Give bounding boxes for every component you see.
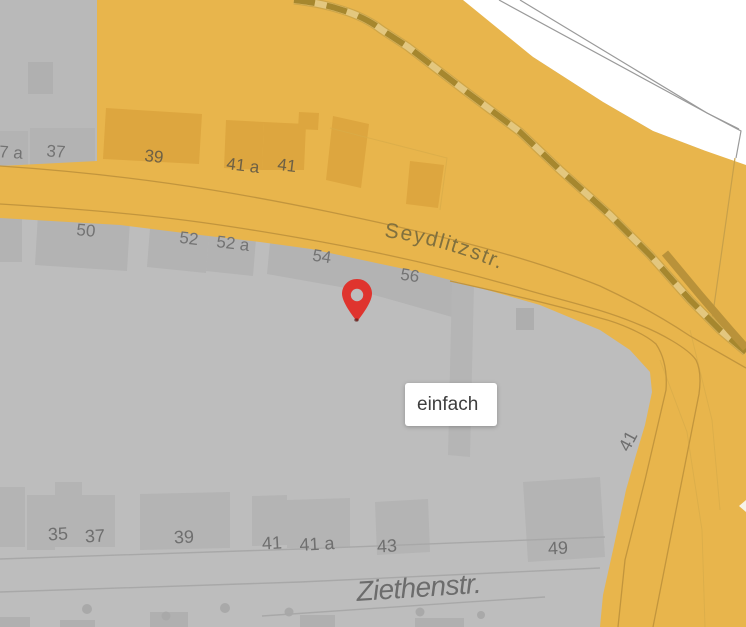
svg-text:37: 37 [46, 141, 66, 161]
svg-text:56: 56 [399, 265, 421, 287]
svg-text:39: 39 [173, 526, 194, 547]
svg-text:52: 52 [178, 228, 199, 249]
svg-text:41 a: 41 a [299, 533, 336, 555]
svg-text:41 a: 41 a [225, 154, 261, 177]
svg-text:41: 41 [261, 532, 282, 553]
svg-text:7 a: 7 a [0, 142, 24, 163]
svg-text:49: 49 [547, 537, 568, 558]
svg-text:37: 37 [84, 525, 105, 546]
svg-text:54: 54 [311, 246, 333, 268]
svg-text:50: 50 [76, 220, 97, 241]
svg-text:52 a: 52 a [215, 232, 251, 255]
svg-text:35: 35 [47, 523, 68, 544]
svg-text:39: 39 [144, 146, 165, 167]
svg-text:41: 41 [276, 155, 297, 176]
svg-text:43: 43 [376, 535, 397, 556]
